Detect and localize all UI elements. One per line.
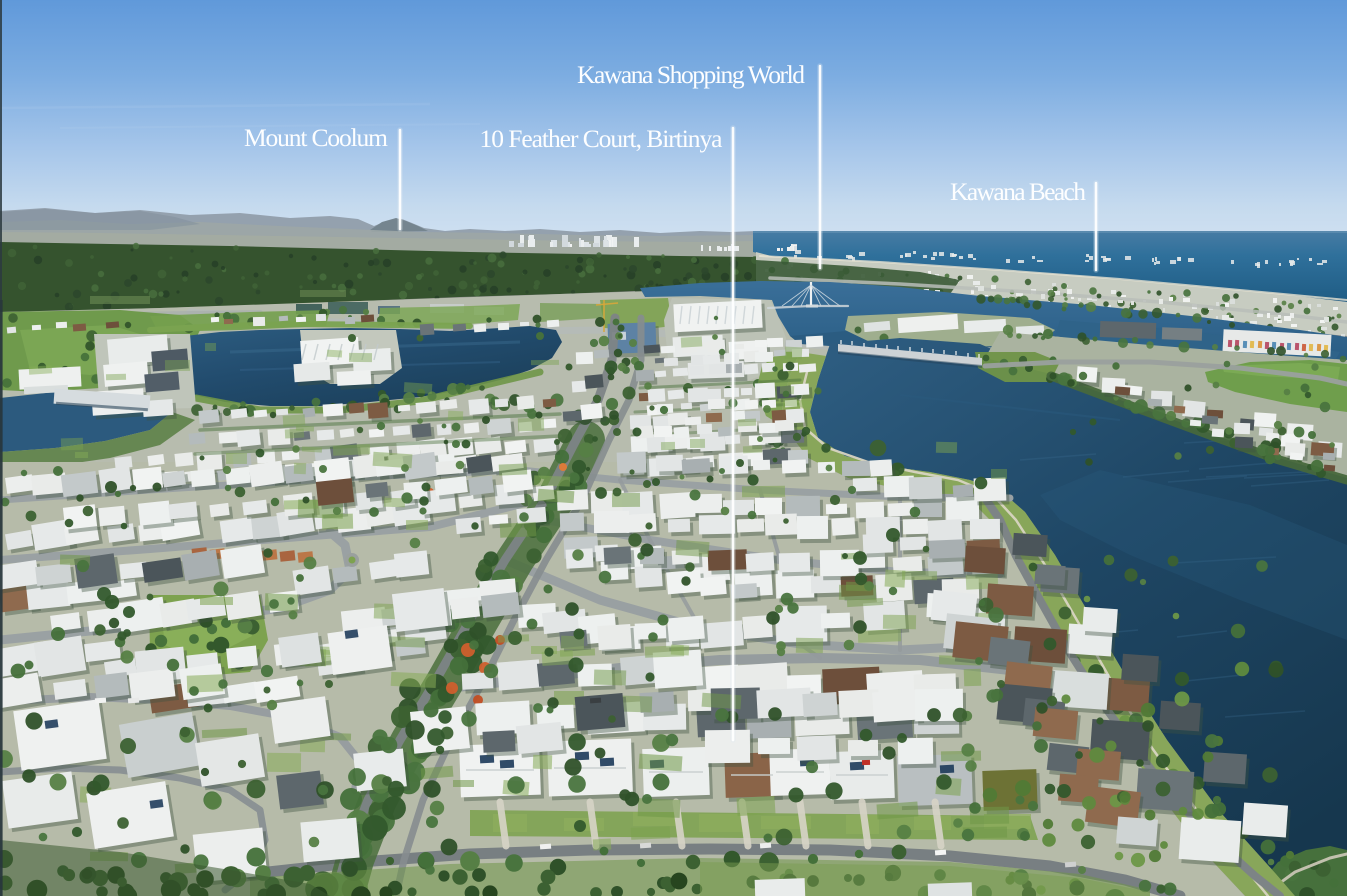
svg-text:Kawana Beach: Kawana Beach	[950, 177, 1086, 206]
svg-text:Mount Coolum: Mount Coolum	[244, 123, 388, 152]
svg-text:10 Feather Court, Birtinya: 10 Feather Court, Birtinya	[480, 124, 723, 153]
svg-text:Kawana Shopping World: Kawana Shopping World	[577, 60, 805, 89]
